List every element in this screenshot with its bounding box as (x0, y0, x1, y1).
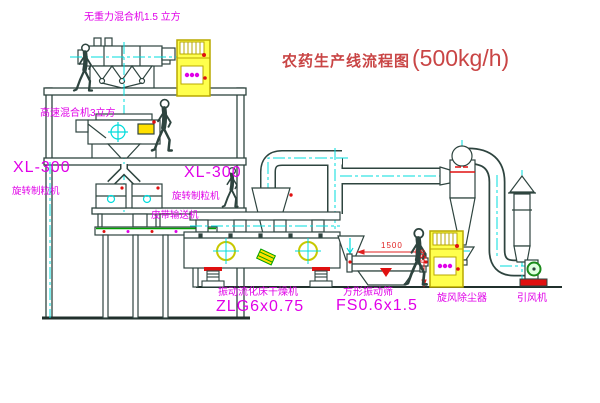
label-sieve-model: FS0.6x1.5 (336, 298, 418, 314)
label-granulator2-model: XL-300 (184, 165, 242, 181)
exhaust-stack (508, 176, 536, 262)
diagram-title: 农药生产线流程图 (500kg/h) (282, 45, 509, 72)
mixer1-machine (78, 38, 175, 88)
label-granulator1-model: XL-300 (13, 160, 71, 176)
label-mixer1: 无重力混合机1.5 立方 (84, 13, 181, 23)
dryer-spring-foot-left (202, 267, 224, 287)
control-cabinet-1 (177, 40, 210, 96)
label-mixer2: 高速混合机3立方 (40, 109, 116, 119)
label-conveyor: 皮带输送机 (151, 211, 199, 221)
control-cabinet-2 (430, 231, 463, 287)
label-fan: 引风机 (517, 294, 547, 304)
label-granulator2-name: 旋转制粒机 (172, 192, 220, 202)
y-splitter-pipe (110, 164, 138, 184)
label-dryer-model: ZLG6x0.75 (216, 299, 304, 315)
granulator1-dot (120, 186, 123, 189)
title-chinese: 农药生产线流程图 (282, 50, 410, 71)
label-dryer-name: 振动流化床干燥机 (218, 288, 298, 298)
dryer-spring-foot-right (310, 267, 332, 287)
flow-diagram-canvas: 农药生产线流程图 (500kg/h) 无重力混合机1.5 立方 高速混合机3立方… (0, 0, 600, 403)
label-cyclone: 旋风除尘器 (437, 294, 487, 304)
label-granulator1-name: 旋转制粒机 (12, 187, 60, 197)
sieve-dot-left (348, 260, 351, 263)
mixer2-status-dot (152, 120, 156, 124)
hopper-dot (289, 193, 292, 196)
title-capacity: (500kg/h) (412, 45, 509, 72)
dimension-sieve-height: 650 (420, 248, 427, 263)
dimension-sieve-width: 1500 (381, 242, 403, 250)
granulator2-dot (156, 186, 159, 189)
